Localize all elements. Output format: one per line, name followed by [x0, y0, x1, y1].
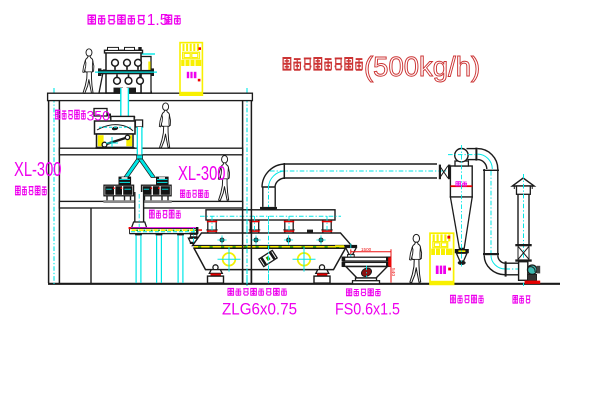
svg-text:XL-300: XL-300: [178, 163, 226, 185]
svg-text:350: 350: [87, 108, 111, 124]
svg-text:1500: 1500: [361, 247, 372, 252]
svg-text:540: 540: [390, 268, 396, 276]
svg-text:XL-300: XL-300: [14, 159, 62, 181]
svg-text:ZLG6x0.75: ZLG6x0.75: [222, 300, 297, 319]
svg-text:(500kg/h): (500kg/h): [364, 51, 480, 82]
svg-text:FS0.6x1.5: FS0.6x1.5: [335, 300, 400, 319]
